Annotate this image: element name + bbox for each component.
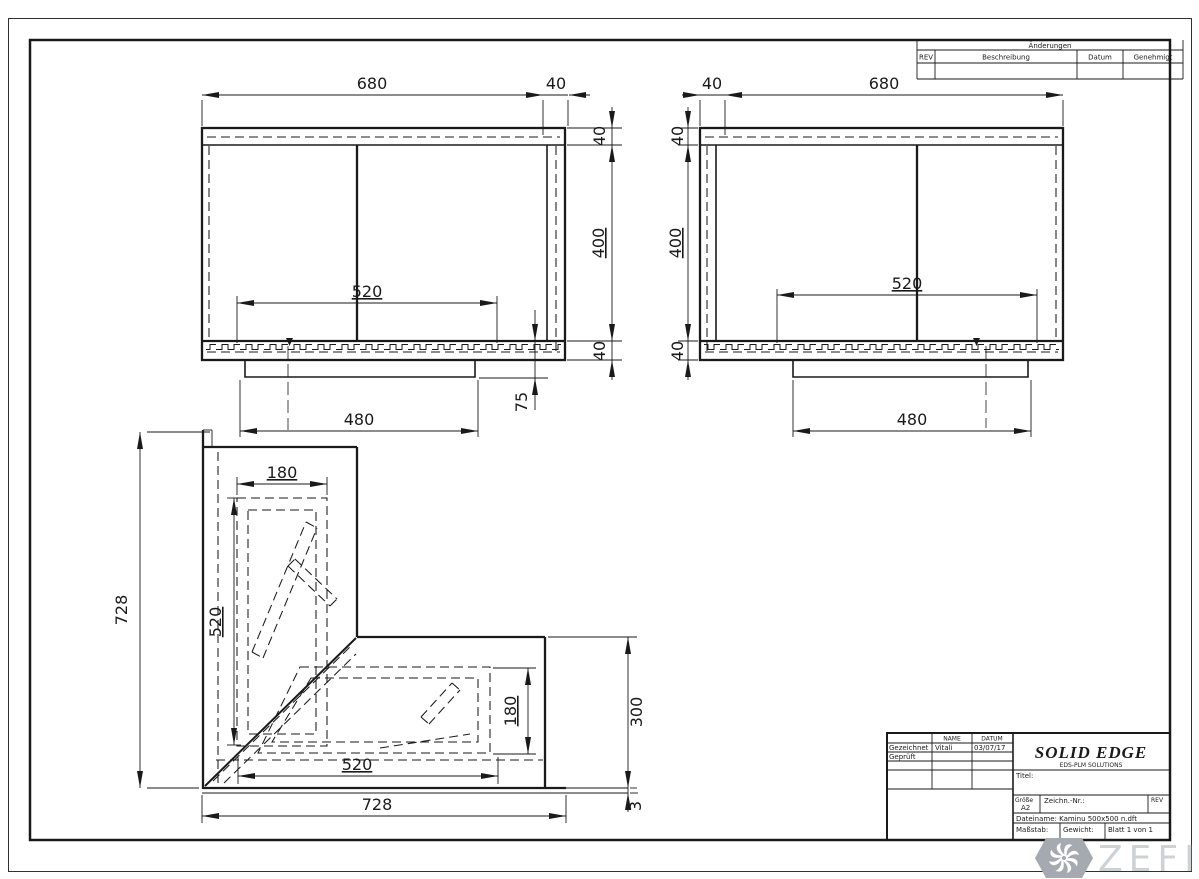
- dim-front-right-side-mid: 400: [666, 228, 685, 259]
- titleblock-date-header: DATUM: [981, 736, 1002, 743]
- dim-front-left-side-top: 40: [590, 126, 609, 146]
- revision-table-title: Änderungen: [1029, 41, 1072, 50]
- front-view-left: 680 40 40 400 40 520 480 75: [202, 74, 622, 437]
- title-block: NAME DATUM Gezeichnet Vitali 03/07/17 Ge…: [887, 733, 1170, 840]
- dim-corner-base-width: 728: [362, 795, 393, 814]
- titleblock-drawn-name: Vitali: [935, 744, 953, 752]
- titleblock-sheet-label: Blatt 1 von 1: [1108, 826, 1153, 834]
- titleblock-drawing-no-label: Zeichn.-Nr.:: [1044, 797, 1085, 805]
- revision-col-rev: REV: [919, 54, 933, 62]
- dim-front-left-top-width: 680: [357, 74, 388, 93]
- titleblock-size-value: A2: [1021, 804, 1030, 812]
- dim-front-right-pedestal-width: 480: [897, 410, 928, 429]
- corner-view: 728 180 520 180 520 728 300 3: [112, 430, 646, 823]
- front-view-right: 40 680 40 400 40 520 480: [666, 74, 1063, 437]
- dim-front-left-pedestal-width: 480: [344, 410, 375, 429]
- dim-corner-recess-height: 520: [206, 607, 225, 638]
- dim-corner-recess-width: 180: [267, 463, 298, 482]
- dim-front-right-opening-width: 520: [892, 274, 923, 293]
- dim-corner-wall-height: 728: [112, 595, 131, 626]
- titleblock-drawn-label: Gezeichnet: [889, 744, 929, 752]
- titleblock-weight-label: Gewicht:: [1063, 826, 1094, 834]
- dim-front-right-top-side: 40: [702, 74, 722, 93]
- dim-front-left-side-mid: 400: [589, 228, 608, 259]
- engineering-drawing-canvas: Änderungen REV Beschreibung Datum Genehm…: [0, 0, 1199, 879]
- dim-corner-floor-recess-depth: 180: [501, 696, 520, 727]
- dim-front-right-side-bottom: 40: [668, 341, 687, 361]
- dim-corner-floor-depth: 300: [627, 697, 646, 728]
- dim-front-left-side-bottom: 40: [590, 341, 609, 361]
- titleblock-rev-label: REV: [1151, 797, 1164, 804]
- dim-front-left-top-side: 40: [546, 74, 566, 93]
- revision-col-datum: Datum: [1088, 54, 1112, 62]
- titleblock-checked-label: Geprüft: [889, 753, 916, 761]
- dim-front-left-pedestal-offset: 75: [512, 392, 531, 412]
- solid-edge-logo-sub: EDS-PLM SOLUTIONS: [1060, 762, 1123, 769]
- revision-table: Änderungen REV Beschreibung Datum Genehm…: [917, 40, 1183, 79]
- dim-front-right-top-width: 680: [869, 74, 900, 93]
- titleblock-drawn-date: 03/07/17: [974, 744, 1005, 752]
- titleblock-name-header: NAME: [943, 736, 961, 743]
- titleblock-filename: Dateiname: Kaminu 500x500 n.dft: [1016, 815, 1137, 823]
- revision-col-beschreibung: Beschreibung: [982, 54, 1030, 62]
- titleblock-scale-label: Maßstab:: [1016, 826, 1048, 834]
- dim-corner-floor-opening-width: 520: [342, 755, 373, 774]
- dim-corner-base-plate: 3: [626, 801, 645, 811]
- revision-col-genehmigt: Genehmigt: [1134, 54, 1173, 62]
- drawing-sheet: Änderungen REV Beschreibung Datum Genehm…: [0, 0, 1199, 879]
- watermark-badge: [1035, 838, 1093, 878]
- titleblock-title-label: Titel:: [1015, 772, 1033, 780]
- solid-edge-logo: SOLID EDGE: [1035, 743, 1148, 762]
- dim-front-left-opening-width: 520: [352, 282, 383, 301]
- watermark-brand-text: ZEFIRE: [1098, 839, 1199, 879]
- titleblock-size-label: Größe: [1015, 797, 1033, 804]
- watermark: ZEFIRE: [1035, 838, 1199, 879]
- dim-front-right-side-top: 40: [668, 126, 687, 146]
